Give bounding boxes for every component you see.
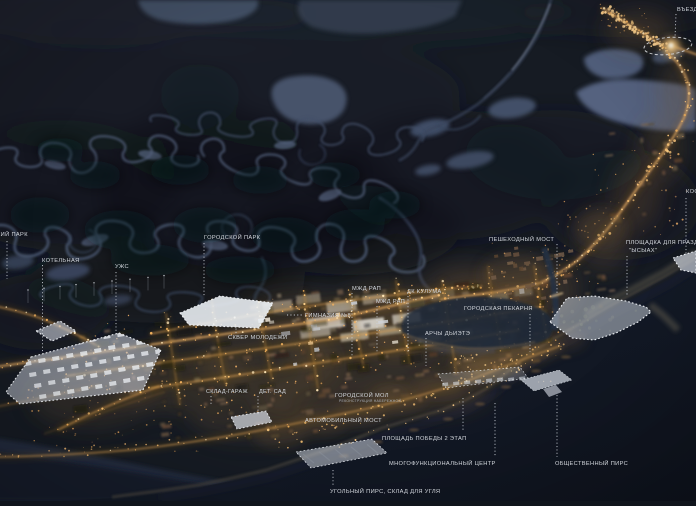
svg-text:МНОГОФУНКЦИОНАЛЬНЫЙ ЦЕНТР: МНОГОФУНКЦИОНАЛЬНЫЙ ЦЕНТР	[389, 459, 496, 467]
svg-text:ОБЩЕСТВЕННЫЙ ПИРС: ОБЩЕСТВЕННЫЙ ПИРС	[555, 459, 628, 467]
svg-text:ДК КУЛУМА: ДК КУЛУМА	[407, 289, 442, 295]
svg-text:ВЪЕЗДН: ВЪЕЗДН	[677, 7, 696, 13]
svg-text:СКВЕР МОЛОДЕЖИ: СКВЕР МОЛОДЕЖИ	[228, 335, 287, 341]
svg-text:СКЛАД-ГАРАЖ: СКЛАД-ГАРАЖ	[206, 389, 248, 395]
svg-text:УГОЛЬНЫЙ ПИРС, СКЛАД ДЛЯ УГЛЯ: УГОЛЬНЫЙ ПИРС, СКЛАД ДЛЯ УГЛЯ	[330, 487, 440, 495]
svg-text:МЖД РАП: МЖД РАП	[376, 299, 405, 305]
svg-text:КИЙ ПАРК: КИЙ ПАРК	[0, 230, 28, 238]
svg-text:ПЕШЕХОДНЫЙ МОСТ: ПЕШЕХОДНЫЙ МОСТ	[489, 235, 554, 243]
svg-text:АВТОМОБИЛЬНЫЙ МОСТ: АВТОМОБИЛЬНЫЙ МОСТ	[305, 416, 382, 424]
svg-text:ДЕТ. САД: ДЕТ. САД	[259, 389, 286, 395]
svg-text:УЖС: УЖС	[115, 264, 129, 270]
svg-text:ГОРОДСКОЙ ПАРК: ГОРОДСКОЙ ПАРК	[204, 233, 261, 241]
svg-text:РЕКОНСТРУКЦИЯ НАБЕРЕЖНОЙ: РЕКОНСТРУКЦИЯ НАБЕРЕЖНОЙ	[339, 399, 401, 403]
svg-text:"ЫСЫАХ": "ЫСЫАХ"	[629, 248, 657, 254]
svg-text:ГОРОДСКОЙ МОЛ: ГОРОДСКОЙ МОЛ	[335, 391, 389, 399]
svg-text:МЖД РАП: МЖД РАП	[352, 286, 381, 292]
svg-text:КОСТ: КОСТ	[686, 189, 696, 195]
svg-text:ГОРОДСКАЯ ПЕКАРНЯ: ГОРОДСКАЯ ПЕКАРНЯ	[464, 306, 533, 312]
svg-text:ПЛОЩАДКА ДЛЯ ПРАЗДНИКА: ПЛОЩАДКА ДЛЯ ПРАЗДНИКА	[626, 240, 696, 246]
svg-text:ПЛОЩАДЬ ПОБЕДЫ 2 ЭТАП: ПЛОЩАДЬ ПОБЕДЫ 2 ЭТАП	[382, 436, 467, 442]
svg-text:ГИМНАЗИЯ №8: ГИМНАЗИЯ №8	[305, 313, 351, 319]
svg-text:АРЧЫ ДЬИЭТЭ: АРЧЫ ДЬИЭТЭ	[425, 331, 470, 337]
svg-text:КОТЕЛЬНАЯ: КОТЕЛЬНАЯ	[42, 258, 80, 264]
